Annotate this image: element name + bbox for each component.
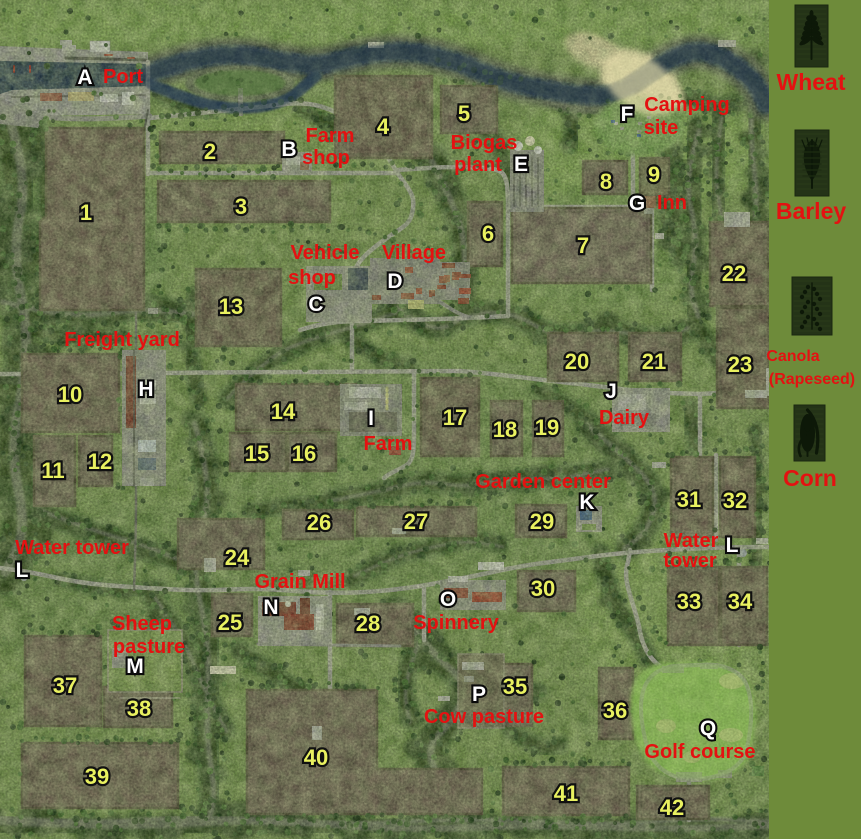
svg-text:H: H: [138, 378, 153, 401]
svg-text:6: 6: [482, 221, 494, 246]
svg-text:F: F: [621, 103, 634, 126]
svg-text:Spinnery: Spinnery: [413, 612, 499, 634]
svg-text:34: 34: [728, 589, 753, 614]
svg-text:20: 20: [565, 349, 589, 374]
svg-text:14: 14: [271, 399, 296, 424]
svg-text:Village: Village: [382, 242, 446, 264]
svg-text:Water: Water: [664, 530, 719, 552]
svg-text:8: 8: [600, 169, 612, 194]
svg-text:G: G: [629, 192, 645, 215]
svg-text:41: 41: [554, 781, 578, 806]
svg-text:15: 15: [245, 441, 269, 466]
svg-text:L: L: [726, 534, 739, 557]
svg-text:Q: Q: [700, 717, 716, 740]
svg-text:Vehicle: Vehicle: [291, 242, 360, 264]
svg-text:Sheep: Sheep: [112, 613, 172, 635]
svg-text:5: 5: [458, 101, 470, 126]
svg-text:32: 32: [723, 488, 747, 513]
svg-text:shop: shop: [288, 267, 336, 289]
svg-text:Inn: Inn: [657, 192, 687, 214]
svg-text:12: 12: [88, 449, 112, 474]
svg-text:Farm: Farm: [306, 125, 355, 147]
svg-text:Garden center: Garden center: [475, 471, 611, 493]
svg-text:Corn: Corn: [783, 465, 837, 491]
svg-text:I: I: [368, 407, 374, 430]
svg-text:Port: Port: [103, 66, 143, 88]
svg-text:33: 33: [677, 589, 701, 614]
svg-text:4: 4: [377, 114, 390, 139]
svg-text:35: 35: [503, 674, 527, 699]
svg-text:11: 11: [41, 458, 64, 483]
svg-text:M: M: [126, 655, 144, 678]
svg-text:22: 22: [722, 261, 746, 286]
svg-text:D: D: [387, 270, 402, 293]
svg-text:1: 1: [80, 200, 92, 225]
svg-text:shop: shop: [302, 147, 350, 169]
svg-text:plant: plant: [454, 154, 502, 176]
svg-text:24: 24: [225, 545, 250, 570]
svg-text:26: 26: [307, 510, 331, 535]
svg-text:19: 19: [535, 415, 559, 440]
svg-text:Barley: Barley: [776, 198, 847, 224]
svg-text:C: C: [308, 293, 323, 316]
svg-text:10: 10: [58, 382, 82, 407]
svg-text:36: 36: [603, 698, 627, 723]
svg-text:13: 13: [219, 294, 243, 319]
svg-text:29: 29: [530, 509, 554, 534]
svg-text:O: O: [440, 588, 456, 611]
svg-text:Camping: Camping: [644, 94, 730, 116]
svg-text:Farm: Farm: [364, 433, 413, 455]
svg-text:3: 3: [235, 194, 247, 219]
svg-text:2: 2: [204, 139, 216, 164]
svg-text:Dairy: Dairy: [599, 407, 650, 429]
svg-text:38: 38: [127, 696, 151, 721]
svg-text:Wheat: Wheat: [777, 69, 846, 95]
svg-text:Golf course: Golf course: [644, 741, 755, 763]
svg-text:Grain Mill: Grain Mill: [254, 571, 345, 593]
svg-text:(Rapeseed): (Rapeseed): [769, 371, 855, 388]
svg-text:Canola: Canola: [766, 348, 819, 365]
svg-text:27: 27: [404, 509, 428, 534]
svg-text:P: P: [472, 683, 486, 706]
svg-text:tower: tower: [663, 550, 717, 572]
svg-text:A: A: [77, 66, 92, 89]
svg-text:pasture: pasture: [113, 636, 185, 658]
svg-text:18: 18: [493, 417, 517, 442]
svg-text:Water tower: Water tower: [15, 537, 129, 559]
svg-text:Cow pasture: Cow pasture: [424, 706, 544, 728]
svg-text:21: 21: [642, 349, 666, 374]
svg-text:J: J: [605, 380, 617, 403]
svg-text:17: 17: [443, 405, 467, 430]
svg-text:Biogas: Biogas: [451, 132, 518, 154]
svg-text:9: 9: [648, 162, 660, 187]
svg-text:42: 42: [660, 795, 684, 820]
svg-text:37: 37: [53, 673, 77, 698]
svg-text:40: 40: [304, 745, 328, 770]
svg-text:site: site: [644, 117, 678, 139]
svg-text:B: B: [281, 138, 296, 161]
svg-text:Freight yard: Freight yard: [64, 329, 180, 351]
svg-text:23: 23: [728, 352, 752, 377]
svg-text:39: 39: [85, 764, 109, 789]
svg-text:28: 28: [356, 611, 380, 636]
svg-text:25: 25: [218, 610, 242, 635]
svg-text:7: 7: [577, 233, 589, 258]
svg-text:E: E: [514, 153, 528, 176]
svg-text:K: K: [579, 491, 594, 514]
svg-text:30: 30: [531, 576, 555, 601]
svg-text:16: 16: [292, 441, 316, 466]
svg-text:N: N: [263, 596, 278, 619]
svg-text:31: 31: [677, 487, 701, 512]
svg-text:L: L: [16, 559, 29, 582]
